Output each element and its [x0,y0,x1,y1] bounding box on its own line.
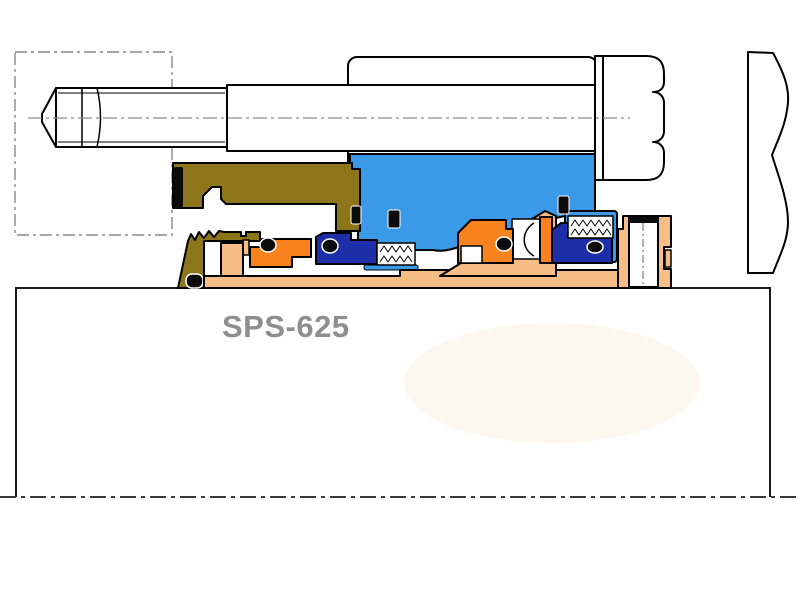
rotary-face-left-oring [260,238,276,252]
gland-split-gasket-left [388,210,400,228]
clip-pocket [512,219,540,259]
collar-tab [665,250,671,267]
shaft-break-edge [748,52,788,273]
model-label: SPS-625 [222,309,350,344]
rotary-face-right-notch [461,246,482,263]
olive-face-gasket [174,167,183,208]
rotary-face-right-oring [496,237,512,251]
spring-right [568,216,613,238]
set-screw-head-band [629,217,658,223]
seal-cross-section-drawing: SPS-625 [0,0,800,600]
stationary-face-right-oring [587,241,603,253]
gland-olive-upper [173,163,360,231]
drive-column-orange [540,217,552,263]
rotary-face-left [250,239,311,267]
olive-joint-gasket [351,206,361,224]
watermark-blob [404,323,700,443]
sleeve-flange [221,243,243,277]
spring-left [377,243,415,265]
drawing-canvas: SPS-625 [0,0,800,600]
stationary-face-left-oring [322,239,338,253]
gland-split-gasket-right [558,196,569,214]
shaft-sleeve [204,270,628,288]
olive-oring [186,274,203,288]
spring-right-box [568,216,613,238]
